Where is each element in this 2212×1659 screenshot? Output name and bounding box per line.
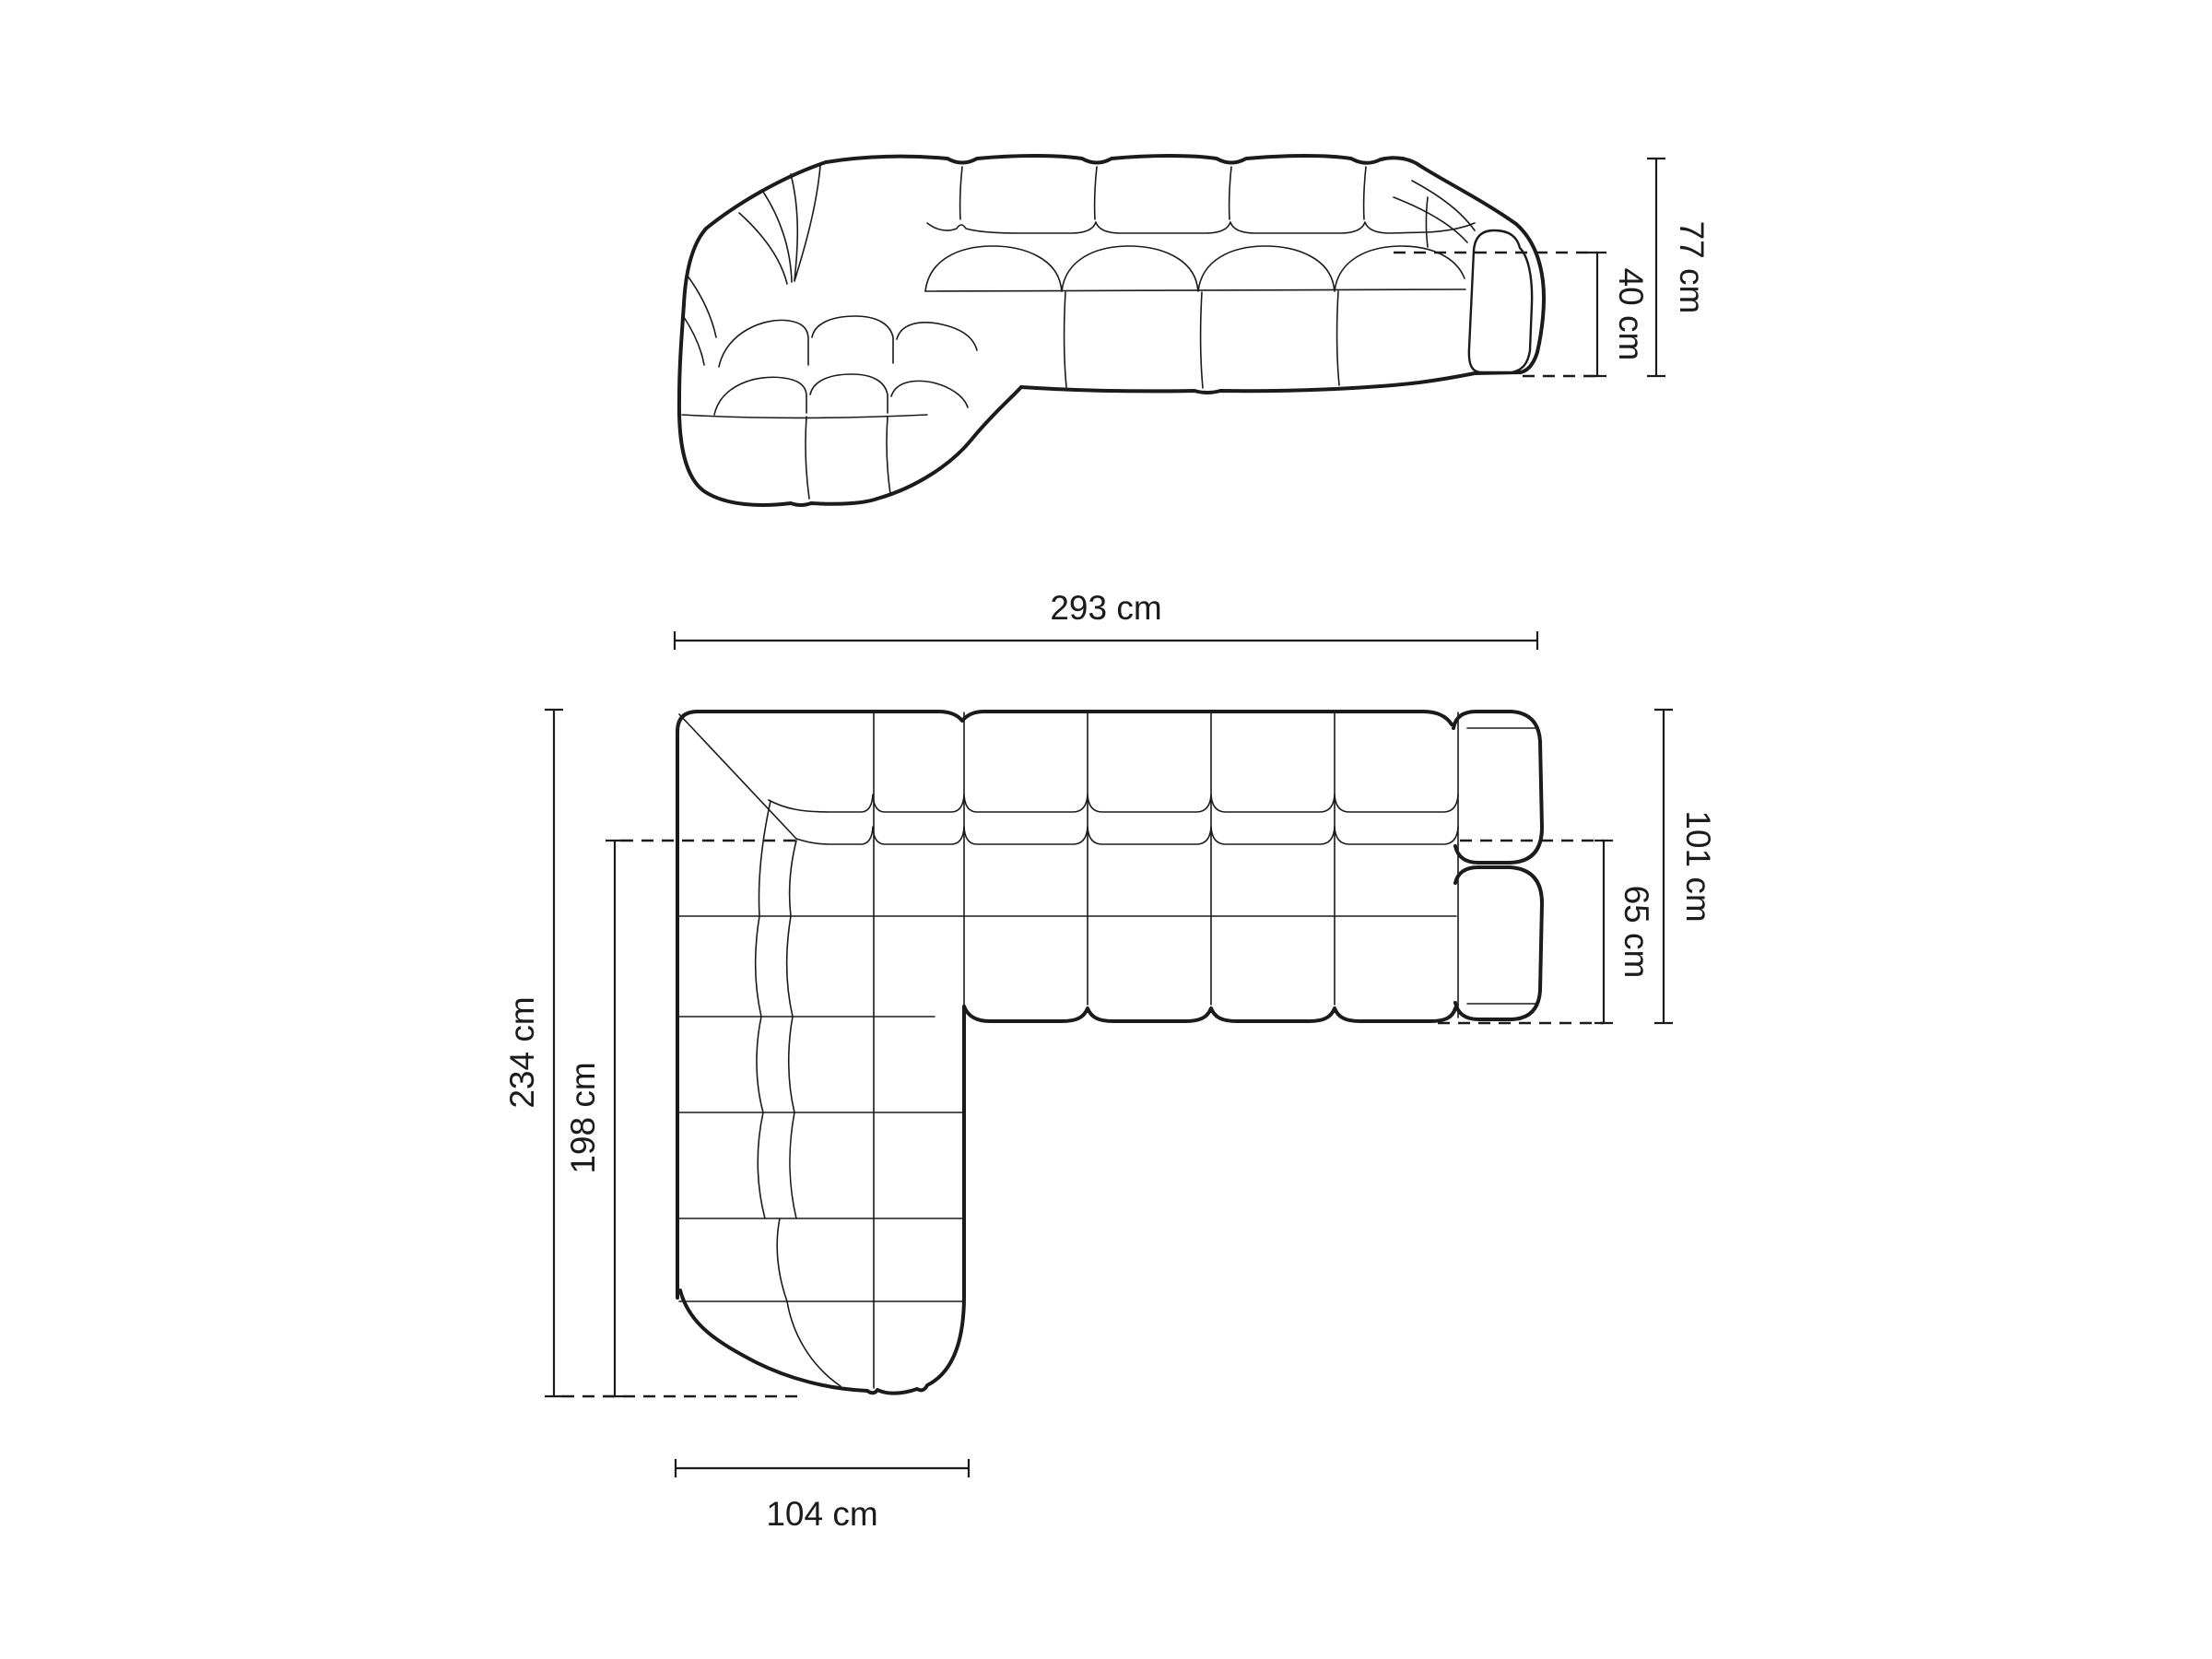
sofa-top-drawing: [677, 712, 1542, 1394]
dim-label-depth-101: 101 cm: [1679, 810, 1717, 922]
dim-label-inner-length-198: 198 cm: [564, 1062, 602, 1173]
diagram-canvas: 77 cm 40 cm: [0, 0, 2212, 1659]
dim-depth-101: 101 cm: [1654, 710, 1717, 1023]
dim-label-seat-height-40: 40 cm: [1612, 268, 1650, 361]
top-view: 293 cm 101 cm 65 cm 234 cm: [503, 589, 1717, 1533]
dim-label-length-234: 234 cm: [503, 996, 541, 1108]
dim-length-234: 234 cm: [503, 710, 563, 1396]
top-silhouette-fill: [677, 712, 1542, 1394]
dim-label-chaise-width-104: 104 cm: [766, 1495, 877, 1533]
dim-label-height-77: 77 cm: [1673, 221, 1711, 314]
sofa-dimension-diagram: 77 cm 40 cm: [0, 0, 2212, 1659]
dim-width-293: 293 cm: [675, 589, 1537, 650]
dim-chaise-width-104: 104 cm: [676, 1459, 969, 1533]
dim-label-width-293: 293 cm: [1050, 589, 1161, 627]
front-view: 77 cm 40 cm: [678, 156, 1711, 505]
dim-height-77: 77 cm: [1647, 159, 1711, 376]
sofa-front-drawing: [678, 156, 1549, 505]
dim-label-seat-depth-65: 65 cm: [1618, 886, 1655, 979]
